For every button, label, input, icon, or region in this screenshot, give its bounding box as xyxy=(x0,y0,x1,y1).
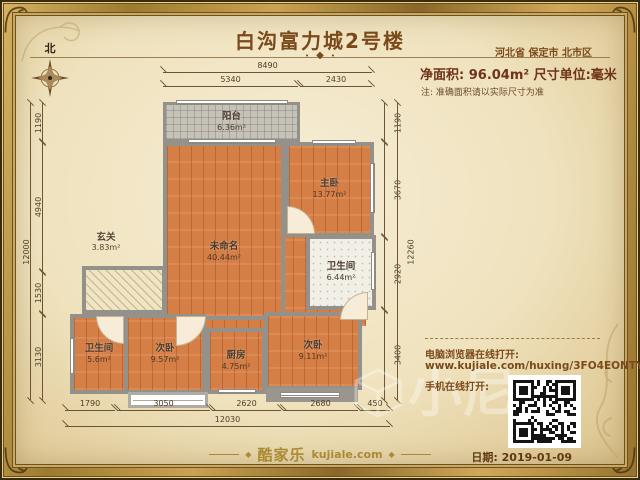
dim-left-seg: 3130 xyxy=(42,314,43,400)
dim-top-seg: 2430 xyxy=(300,86,372,87)
dim-top-overall: 8490 xyxy=(163,72,372,73)
dim-top-seg: 5340 xyxy=(163,86,298,87)
room-kitchen: 厨房 4.75m² xyxy=(206,328,266,394)
dim-bottom-seg: 2620 xyxy=(212,410,281,411)
window xyxy=(312,140,356,145)
mobile-open-label: 手机在线打开: xyxy=(425,378,489,393)
date-label: 日期: 2019-01-09 xyxy=(471,449,572,465)
room-living: 未命名 40.44m² xyxy=(163,142,285,320)
window xyxy=(371,252,376,290)
footer-diamond-icon: ◆ xyxy=(245,450,251,459)
room-bedroom-3: 次卧 9.11m² xyxy=(264,312,362,390)
window xyxy=(218,389,256,394)
dim-bottom-overall: 12030 xyxy=(65,426,390,427)
qr-code xyxy=(508,375,581,448)
brand-domain: kujiale.com xyxy=(311,448,382,461)
window xyxy=(370,163,375,213)
room-label: 次卧 9.11m² xyxy=(268,316,358,386)
floorplan-sheet: 白沟富力城2号楼 • ◆ • 北 河北省 保定市 北市区 净面积: 96.04m… xyxy=(0,0,640,480)
share-url: www.kujiale.com/huxing/3FO4EONTYVUX xyxy=(425,360,640,372)
dim-left-seg: 1190 xyxy=(42,103,43,142)
room-entry-hall xyxy=(82,266,166,314)
dim-right-overall: 12260 xyxy=(397,103,398,400)
dim-right-seg: 2920 xyxy=(384,237,385,310)
window xyxy=(70,338,75,374)
room-label: 厨房 4.75m² xyxy=(210,332,262,390)
dim-bottom-seg: 2680 xyxy=(283,410,358,411)
window xyxy=(280,392,340,398)
desktop-open-label: 电脑浏览器在线打开: xyxy=(425,346,519,361)
footer-diamond-icon: ◆ xyxy=(389,450,395,459)
entry-hall-label: 玄关 3.83m² xyxy=(70,232,142,253)
dim-right-seg: 3400 xyxy=(384,310,385,400)
brand-name: 酷家乐 xyxy=(257,444,305,465)
room-balcony: 阳台 6.36m² xyxy=(163,102,300,142)
room-label: 未命名 40.44m² xyxy=(167,146,281,316)
dim-right-seg: 1190 xyxy=(384,103,385,142)
share-separator xyxy=(425,338,600,339)
dim-bottom-seg: 1790 xyxy=(65,410,115,411)
window xyxy=(188,139,276,144)
dim-left-seg: 1530 xyxy=(42,272,43,314)
dim-left-overall: 12000 xyxy=(30,103,31,400)
dim-right-seg: 3670 xyxy=(384,142,385,237)
window xyxy=(176,100,288,105)
footer-line xyxy=(209,454,239,455)
dim-left-seg: 4940 xyxy=(42,142,43,272)
room-label: 阳台 6.36m² xyxy=(166,105,297,139)
dim-bottom-seg: 3050 xyxy=(117,410,210,411)
dim-bottom-seg: 450 xyxy=(360,410,390,411)
footer-line xyxy=(401,454,431,455)
